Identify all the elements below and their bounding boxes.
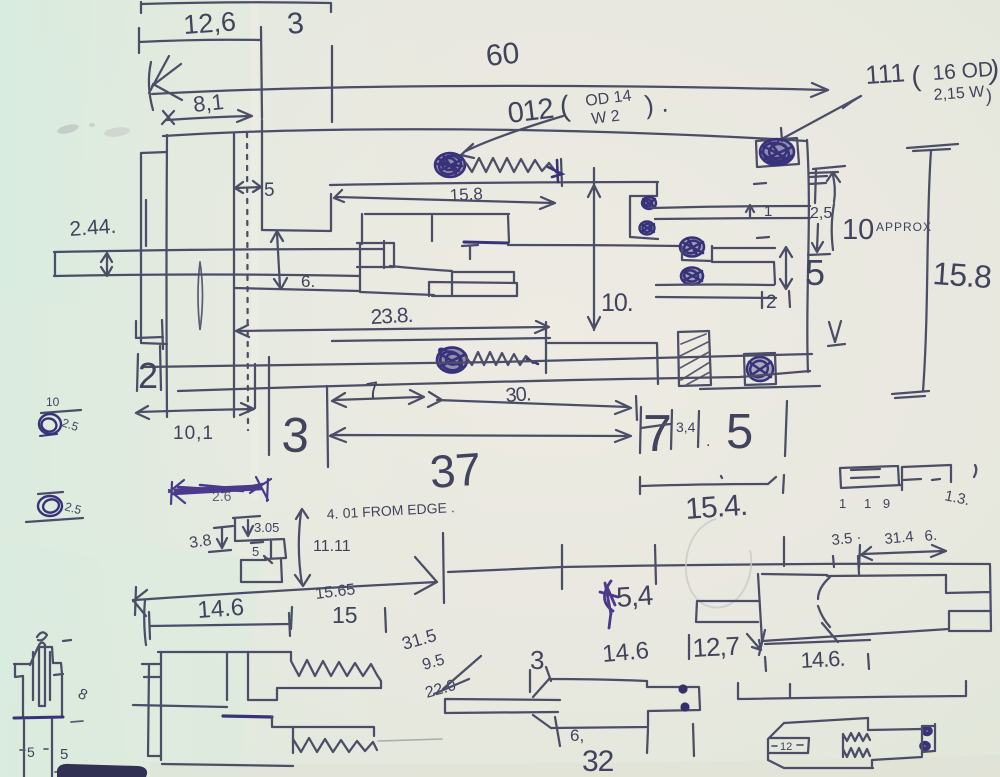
svg-text:5: 5 [60,746,68,763]
svg-text:3.05: 3.05 [254,520,279,535]
svg-text:6.: 6. [924,527,938,545]
svg-text:APPROX: APPROX [876,220,932,234]
svg-text:23.8.: 23.8. [370,304,413,329]
svg-text:6.: 6. [301,272,315,291]
svg-text:2.6: 2.6 [212,488,232,504]
svg-text:3: 3 [280,408,310,463]
svg-text:111: 111 [864,57,906,90]
svg-text:1: 1 [839,496,846,511]
svg-text:12: 12 [780,741,792,753]
svg-text:15.8: 15.8 [449,184,483,205]
svg-text:3.5 ·: 3.5 · [831,529,863,549]
svg-text:5,4: 5,4 [615,580,653,613]
svg-text:5: 5 [27,744,35,760]
svg-text:12,7: 12,7 [692,631,741,663]
svg-text:4.: 4. [326,505,339,522]
svg-text:8,1: 8,1 [192,89,225,117]
svg-text:6,: 6, [570,726,584,745]
svg-text:1 9: 1 9 [864,496,894,511]
svg-text:14.6: 14.6 [197,594,245,624]
svg-text:15.4.: 15.4. [684,489,748,526]
svg-text:3,4: 3,4 [676,419,696,435]
svg-text:14.6: 14.6 [601,637,650,668]
svg-text:12,6: 12,6 [182,6,237,40]
svg-text:W 2: W 2 [590,108,620,128]
svg-text:32: 32 [582,745,614,777]
svg-text:31.4: 31.4 [884,528,915,548]
svg-text:3.8: 3.8 [188,532,212,552]
svg-text:11.11: 11.11 [313,538,351,555]
svg-text:3: 3 [530,645,544,675]
svg-text:10: 10 [842,214,874,246]
svg-text:5: 5 [264,180,275,201]
svg-text:) .: ) . [643,87,670,120]
svg-text:10: 10 [46,395,60,409]
svg-text:5: 5 [805,252,825,293]
svg-text:2,5: 2,5 [810,205,832,222]
svg-text:16 OD: 16 OD [932,58,994,85]
svg-text:.: . [706,433,710,450]
svg-text:10.: 10. [601,289,633,317]
svg-text:10,1: 10,1 [173,423,214,444]
svg-text:1: 1 [764,203,772,220]
svg-text:60: 60 [484,37,521,73]
svg-text:): ) [986,86,992,106]
svg-text:14.6.: 14.6. [800,646,845,673]
svg-text:30.: 30. [505,383,531,407]
svg-text:5: 5 [252,544,259,559]
svg-text:7: 7 [643,405,672,463]
svg-text:15.8: 15.8 [932,255,993,295]
svg-text:2,15 W: 2,15 W [933,83,986,104]
svg-text:37: 37 [428,443,483,498]
svg-text:2: 2 [138,355,158,396]
svg-text:2.44.: 2.44. [69,215,117,241]
svg-text:3: 3 [286,7,306,41]
svg-text:2: 2 [766,292,777,313]
svg-text:5: 5 [726,405,753,459]
svg-text:15: 15 [332,602,358,628]
